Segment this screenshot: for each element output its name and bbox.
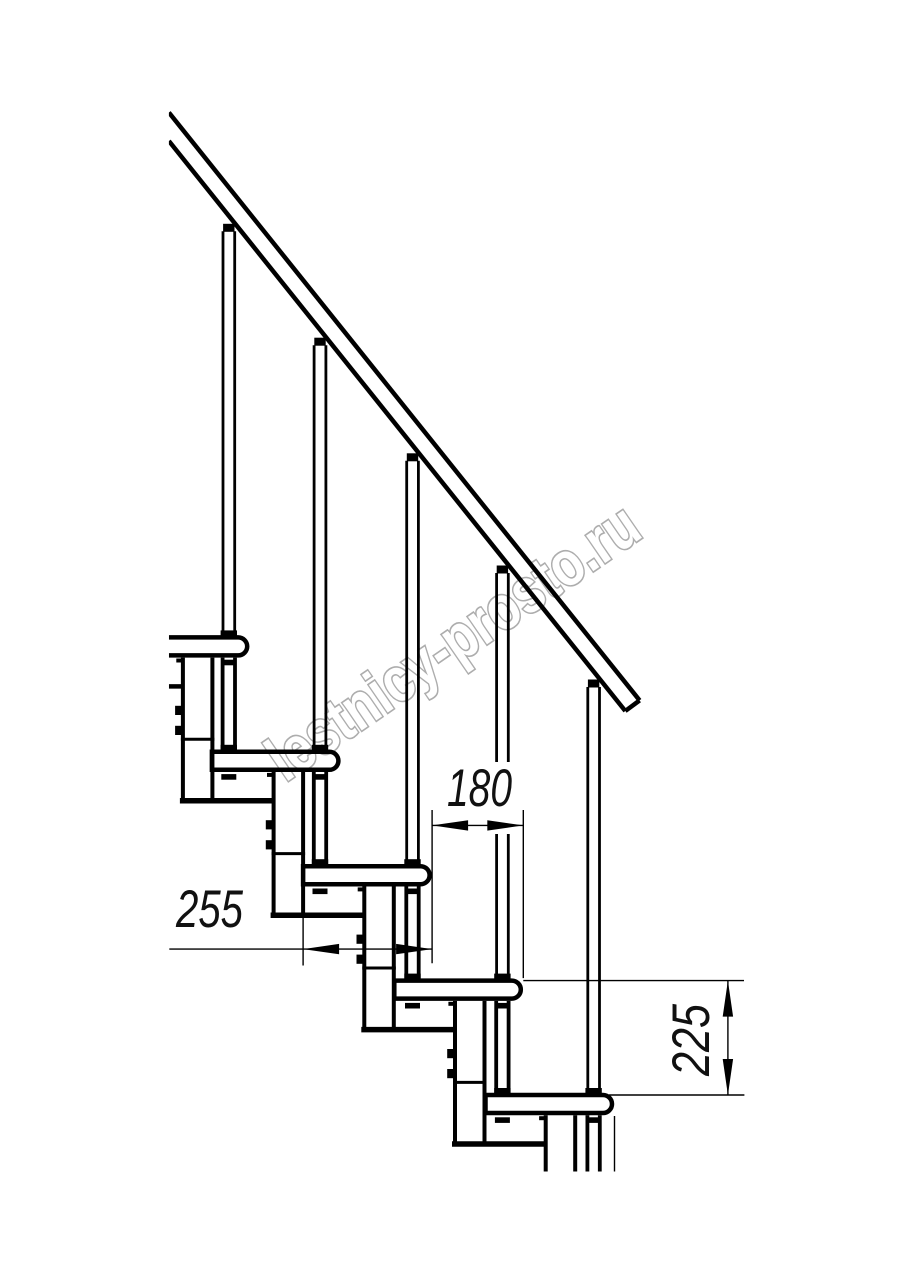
svg-text:255: 255 — [175, 880, 243, 939]
svg-text:180: 180 — [447, 759, 512, 818]
svg-text:225: 225 — [662, 1004, 721, 1077]
